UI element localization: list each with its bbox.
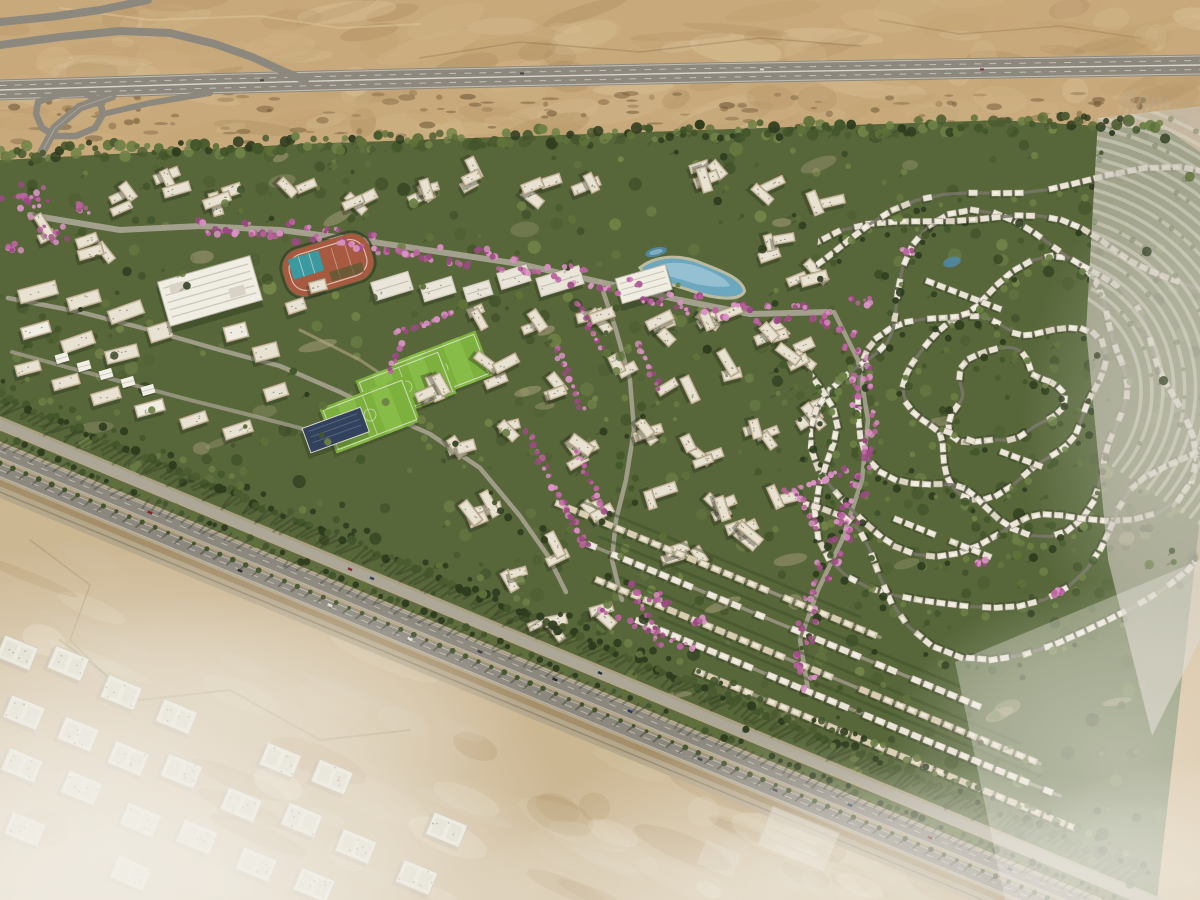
screenshot-stage [0,0,1200,900]
aerial-masterplan-render [0,0,1200,900]
